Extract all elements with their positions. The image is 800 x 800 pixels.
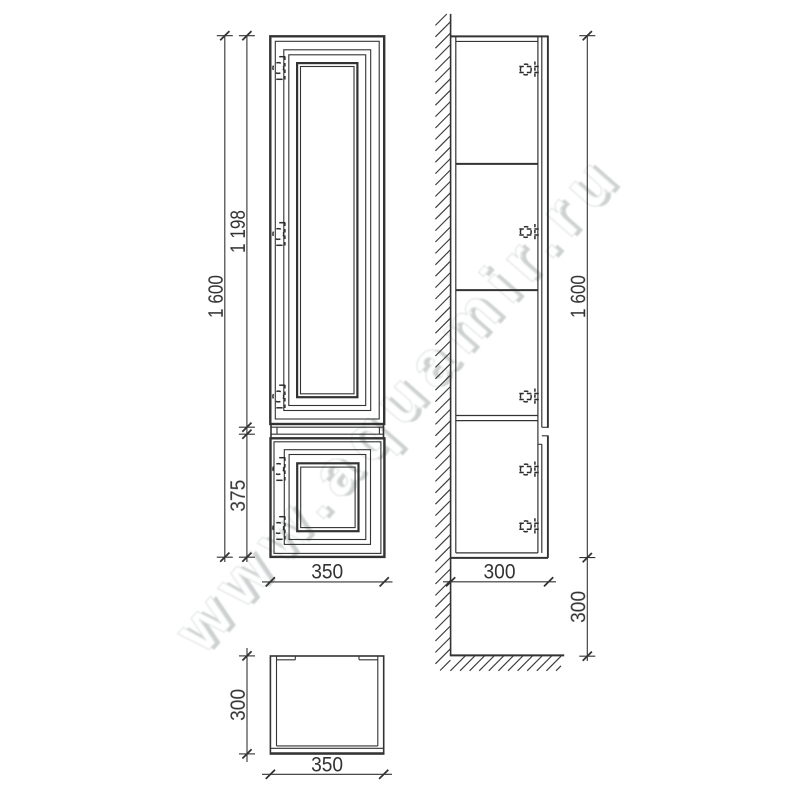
svg-text:350: 350	[311, 753, 343, 776]
svg-text:300: 300	[567, 591, 590, 623]
svg-text:1 198: 1 198	[227, 210, 250, 253]
svg-text:1 600: 1 600	[567, 275, 590, 318]
svg-text:300: 300	[484, 560, 516, 583]
svg-text:300: 300	[227, 689, 250, 721]
svg-text:375: 375	[227, 480, 250, 512]
svg-text:1 600: 1 600	[205, 275, 228, 318]
svg-text:350: 350	[311, 561, 343, 584]
